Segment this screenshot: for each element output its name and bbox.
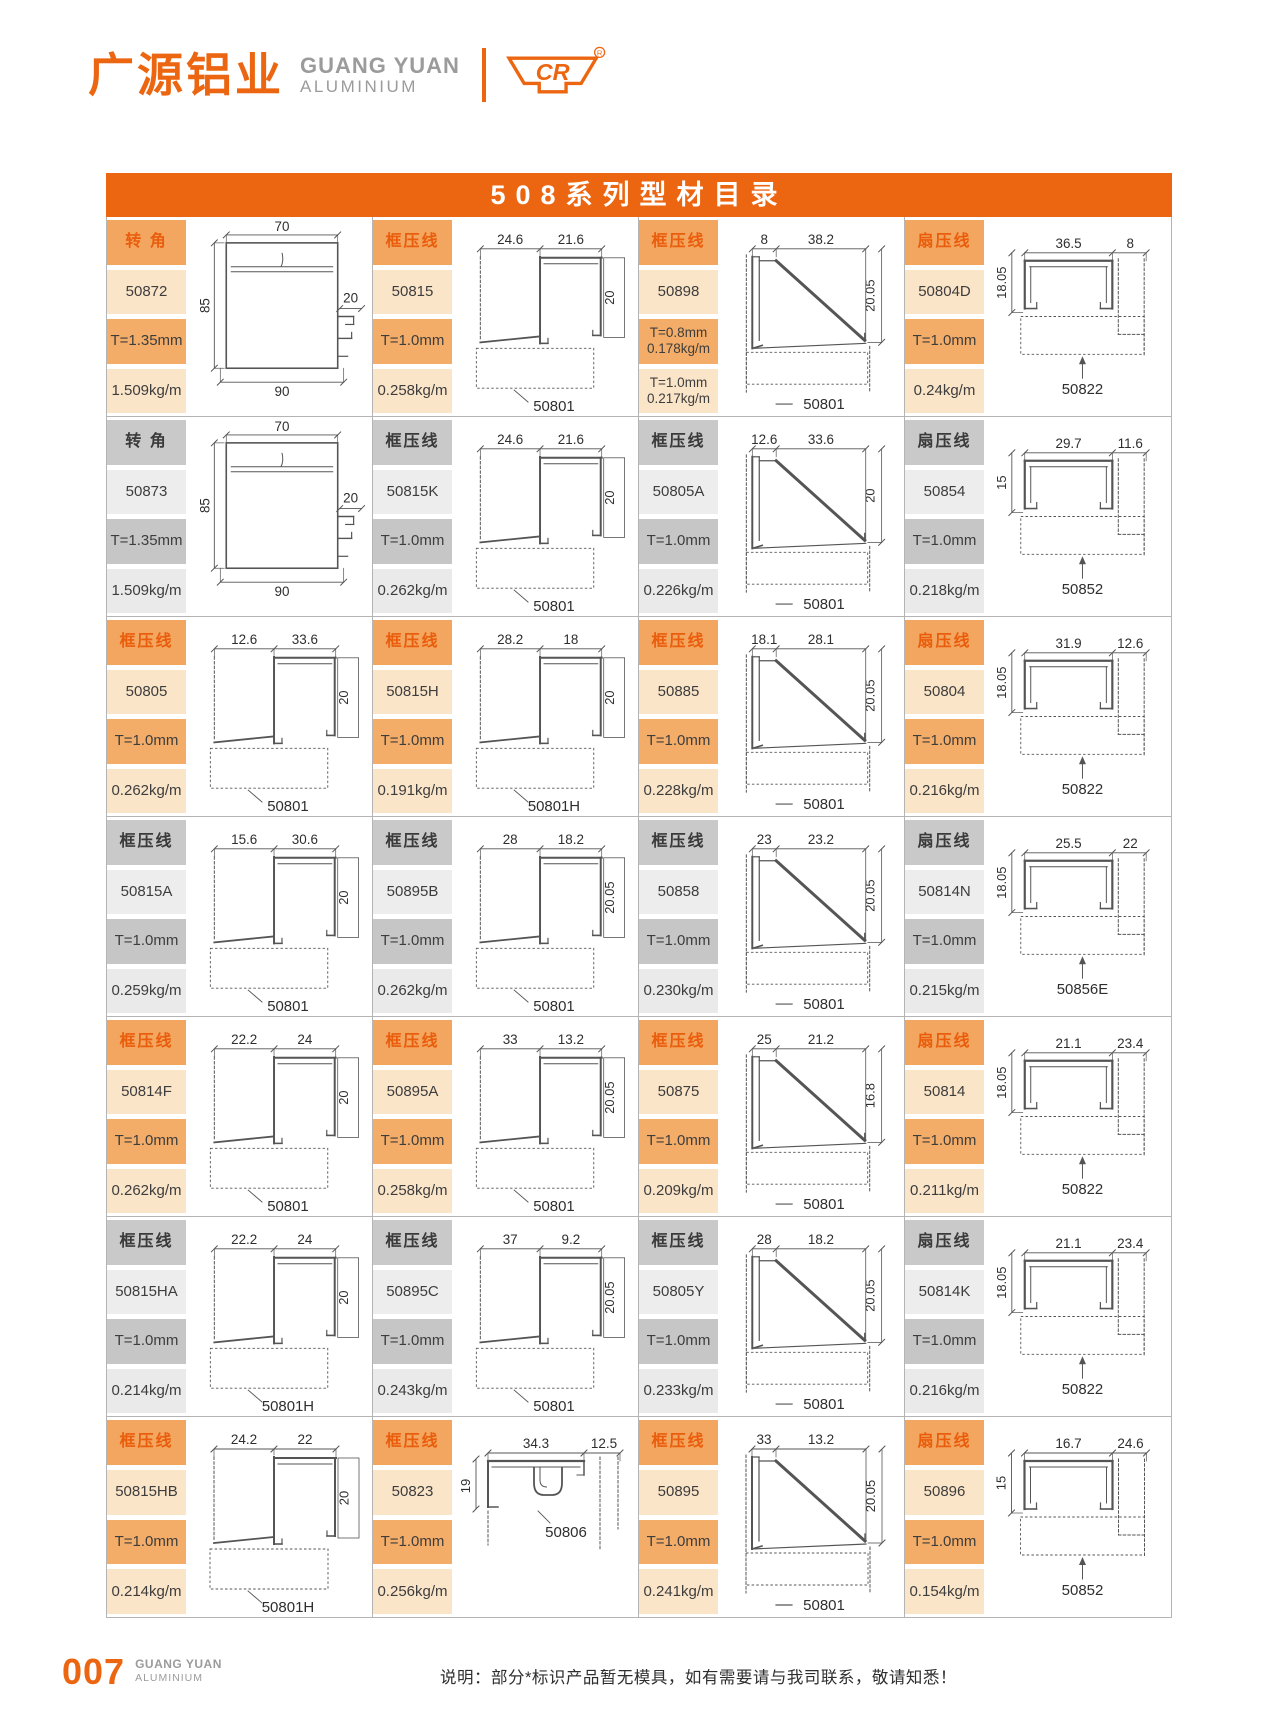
profile-weight: 0.154kg/m	[905, 1569, 984, 1614]
svg-text:50801: 50801	[803, 996, 844, 1013]
profile-drawing: 70852090	[186, 417, 372, 616]
profile-weight: 0.233kg/m	[639, 1369, 718, 1414]
profile-category: 扇压线	[905, 220, 984, 265]
profile-weight: 0.256kg/m	[373, 1569, 452, 1614]
profile-drawing: 28.2182050801H	[452, 617, 638, 816]
profile-thickness: T=1.0mm	[373, 1520, 452, 1565]
svg-text:18.05: 18.05	[994, 1266, 1009, 1298]
profile-category: 扇压线	[905, 820, 984, 865]
profile-code: 50805A	[639, 470, 718, 515]
profile-drawing: 16.724.61550852	[984, 1417, 1171, 1617]
svg-text:50801: 50801	[267, 798, 308, 815]
svg-text:50801H: 50801H	[262, 1398, 314, 1415]
profile-category: 扇压线	[905, 1220, 984, 1265]
svg-text:50856E: 50856E	[1057, 981, 1108, 998]
profile-info-column: 框压线50815AT=1.0mm0.259kg/m	[107, 817, 186, 1016]
profile-category: 框压线	[373, 1020, 452, 1065]
profile-thickness: T=1.35mm	[107, 319, 186, 364]
profile-drawing-svg: 70852090	[186, 217, 372, 416]
svg-text:19: 19	[458, 1479, 473, 1493]
profile-cell: 扇压线50854T=1.0mm0.218kg/m29.711.61550852	[905, 417, 1171, 617]
profile-info-column: 框压线50823T=1.0mm0.256kg/m	[373, 1417, 452, 1617]
profile-info-column: 框压线50895AT=1.0mm0.258kg/m	[373, 1017, 452, 1216]
svg-text:20: 20	[343, 291, 358, 306]
profile-cell: 框压线50805YT=1.0mm0.233kg/m2818.220.055080…	[639, 1217, 905, 1417]
profile-code: 50896	[905, 1470, 984, 1515]
profile-weight: 0.258kg/m	[373, 1169, 452, 1214]
profile-info-column: 框压线50815KT=1.0mm0.262kg/m	[373, 417, 452, 616]
profile-cell: 框压线50895CT=1.0mm0.243kg/m379.220.0550801	[373, 1217, 639, 1417]
profile-info-column: 转 角50873T=1.35mm1.509kg/m	[107, 417, 186, 616]
profile-info-column: 框压线50895CT=1.0mm0.243kg/m	[373, 1217, 452, 1416]
profile-cell: 扇压线50814T=1.0mm0.211kg/m21.123.418.05508…	[905, 1017, 1171, 1217]
profile-code: 50805Y	[639, 1270, 718, 1315]
profile-drawing-svg: 2818.220.0550801	[452, 817, 638, 1016]
profile-weight: 0.209kg/m	[639, 1169, 718, 1214]
svg-text:18: 18	[563, 632, 578, 647]
page-header: 广源铝业 GUANG YUAN ALUMINIUM CR R	[88, 44, 608, 106]
svg-text:33: 33	[503, 1032, 518, 1047]
profile-thickness: T=1.0mm	[373, 1319, 452, 1364]
catalog-table: 508系列型材目录 转 角50872T=1.35mm1.509kg/m70852…	[106, 173, 1172, 1618]
svg-text:16.8: 16.8	[863, 1083, 878, 1108]
profile-drawing: 3313.220.0550801	[718, 1417, 904, 1617]
profile-code: 50814N	[905, 870, 984, 915]
svg-text:85: 85	[197, 298, 212, 313]
svg-text:20.05: 20.05	[602, 881, 617, 913]
profile-weight: 0.262kg/m	[373, 569, 452, 614]
profile-code: 50815A	[107, 870, 186, 915]
svg-text:20.05: 20.05	[602, 1281, 617, 1313]
svg-text:18.1: 18.1	[751, 632, 777, 647]
profile-weight: 1.509kg/m	[107, 569, 186, 614]
svg-text:50822: 50822	[1062, 1381, 1103, 1398]
svg-text:15.6: 15.6	[231, 832, 257, 847]
svg-text:70: 70	[275, 219, 290, 234]
svg-text:23: 23	[757, 832, 772, 847]
brand-subtitle-en: ALUMINIUM	[300, 78, 460, 97]
profile-drawing-svg: 2818.220.0550801	[718, 1217, 904, 1416]
profile-cell: 框压线50895T=1.0mm0.241kg/m3313.220.0550801	[639, 1417, 905, 1617]
page-footer: 007 GUANG YUAN ALUMINIUM	[62, 1656, 222, 1688]
svg-text:21.1: 21.1	[1055, 1236, 1081, 1251]
profile-code: 50815	[373, 270, 452, 315]
profile-thickness: T=1.0mm	[373, 319, 452, 364]
profile-category: 框压线	[373, 820, 452, 865]
svg-text:36.5: 36.5	[1055, 236, 1081, 251]
profile-drawing-svg: 12.633.62050801	[718, 417, 904, 616]
profile-info-column: 框压线50895BT=1.0mm0.262kg/m	[373, 817, 452, 1016]
profile-drawing-svg: 16.724.61550852	[984, 1417, 1171, 1617]
profile-category: 框压线	[107, 1220, 186, 1265]
profile-info-column: 框压线50805T=1.0mm0.262kg/m	[107, 617, 186, 816]
profile-cell: 扇压线50896T=1.0mm0.154kg/m16.724.61550852	[905, 1417, 1171, 1617]
svg-text:R: R	[597, 48, 603, 57]
profile-cell: 框压线50815AT=1.0mm0.259kg/m15.630.62050801	[107, 817, 373, 1017]
profile-info-column: 扇压线50804T=1.0mm0.216kg/m	[905, 617, 984, 816]
svg-text:33: 33	[756, 1432, 771, 1447]
svg-text:50822: 50822	[1062, 381, 1103, 398]
profile-weight: 0.228kg/m	[639, 769, 718, 814]
brand-logo-chinese: 广源铝业	[88, 52, 284, 98]
svg-text:21.2: 21.2	[808, 1032, 834, 1047]
profile-category: 扇压线	[905, 620, 984, 665]
svg-text:18.05: 18.05	[994, 266, 1009, 298]
profile-info-column: 框压线50898T=0.8mm0.178kg/mT=1.0mm0.217kg/m	[639, 217, 718, 416]
svg-text:50801: 50801	[803, 596, 844, 613]
profile-code: 50895B	[373, 870, 452, 915]
profile-code: 50885	[639, 670, 718, 715]
profile-category: 框压线	[639, 420, 718, 465]
svg-text:20: 20	[336, 690, 351, 704]
footer-brand: GUANG YUAN ALUMINIUM	[135, 1658, 222, 1684]
profile-drawing-svg: 3313.220.0550801	[452, 1017, 638, 1216]
profile-drawing-svg: 36.5818.0550822	[984, 217, 1171, 416]
profile-drawing-svg: 12.633.62050801	[186, 617, 372, 816]
profile-weight: 0.262kg/m	[373, 969, 452, 1014]
profile-info-column: 框压线50815T=1.0mm0.258kg/m	[373, 217, 452, 416]
profile-drawing: 379.220.0550801	[452, 1217, 638, 1416]
profile-info-column: 扇压线50854T=1.0mm0.218kg/m	[905, 417, 984, 616]
profile-drawing: 838.220.0550801	[718, 217, 904, 416]
svg-text:8: 8	[761, 232, 768, 247]
profile-cell: 扇压线50814NT=1.0mm0.215kg/m25.52218.055085…	[905, 817, 1171, 1017]
svg-text:20.05: 20.05	[602, 1081, 617, 1113]
profile-drawing-svg: 31.912.618.0550822	[984, 617, 1171, 816]
svg-text:85: 85	[197, 498, 212, 513]
svg-text:24.6: 24.6	[497, 232, 523, 247]
profile-drawing: 34.312.51950806	[452, 1417, 638, 1617]
svg-text:20: 20	[602, 690, 617, 704]
profile-weight: 0.215kg/m	[905, 969, 984, 1014]
profile-weight: 0.214kg/m	[107, 1569, 186, 1614]
profile-thickness: T=1.0mm	[107, 719, 186, 764]
profile-drawing: 2818.220.0550801	[718, 1217, 904, 1416]
profile-cell: 框压线50875T=1.0mm0.209kg/m2521.216.850801	[639, 1017, 905, 1217]
profile-drawing: 12.633.62050801	[186, 617, 372, 816]
svg-text:20.05: 20.05	[863, 879, 878, 911]
profile-drawing: 12.633.62050801	[718, 417, 904, 616]
profile-cell: 转 角50873T=1.35mm1.509kg/m70852090	[107, 417, 373, 617]
profile-thickness: T=1.0mm	[905, 1520, 984, 1565]
svg-text:24.6: 24.6	[1117, 1436, 1143, 1451]
svg-text:22: 22	[297, 1432, 312, 1447]
profile-grid: 转 角50872T=1.35mm1.509kg/m70852090框压线5081…	[106, 217, 1172, 1618]
svg-text:33.6: 33.6	[292, 632, 318, 647]
catalog-title: 508系列型材目录	[106, 173, 1172, 217]
svg-text:9.2: 9.2	[562, 1232, 581, 1247]
profile-cell: 框压线50858T=1.0mm0.230kg/m2323.220.0550801	[639, 817, 905, 1017]
profile-drawing: 22.2242050801	[186, 1017, 372, 1216]
profile-drawing-svg: 29.711.61550852	[984, 417, 1171, 616]
svg-text:50801: 50801	[267, 1198, 308, 1215]
svg-text:21.6: 21.6	[558, 232, 584, 247]
profile-thickness: T=1.0mm	[905, 1319, 984, 1364]
svg-text:20: 20	[602, 490, 617, 504]
profile-drawing: 2818.220.0550801	[452, 817, 638, 1016]
profile-thickness: T=1.0mm	[373, 1119, 452, 1164]
svg-text:90: 90	[275, 384, 290, 399]
profile-cell: 扇压线50814KT=1.0mm0.216kg/m21.123.418.0550…	[905, 1217, 1171, 1417]
svg-text:12.6: 12.6	[1117, 636, 1143, 651]
profile-category: 框压线	[107, 620, 186, 665]
svg-text:50801: 50801	[533, 1198, 574, 1215]
svg-text:50801: 50801	[803, 1396, 844, 1413]
svg-text:22.2: 22.2	[231, 1232, 257, 1247]
profile-drawing: 22.2242050801H	[186, 1217, 372, 1416]
profile-info-column: 转 角50872T=1.35mm1.509kg/m	[107, 217, 186, 416]
svg-text:28: 28	[757, 1232, 772, 1247]
profile-cell: 框压线50805T=1.0mm0.262kg/m12.633.62050801	[107, 617, 373, 817]
profile-cell: 扇压线50804DT=1.0mm0.24kg/m36.5818.0550822	[905, 217, 1171, 417]
svg-text:20.05: 20.05	[863, 1480, 878, 1513]
profile-cell: 框压线50898T=0.8mm0.178kg/mT=1.0mm0.217kg/m…	[639, 217, 905, 417]
profile-drawing-svg: 24.621.62050801	[452, 417, 638, 616]
profile-weight: 0.241kg/m	[639, 1569, 718, 1614]
profile-thickness: T=1.0mm	[639, 919, 718, 964]
profile-category: 框压线	[373, 220, 452, 265]
svg-text:20: 20	[343, 491, 358, 506]
profile-cell: 框压线50815KT=1.0mm0.262kg/m24.621.62050801	[373, 417, 639, 617]
profile-weight: T=1.0mm0.217kg/m	[639, 369, 718, 414]
svg-text:28.2: 28.2	[497, 632, 523, 647]
profile-category: 框压线	[639, 220, 718, 265]
profile-info-column: 框压线50895T=1.0mm0.241kg/m	[639, 1417, 718, 1617]
profile-cell: 框压线50895BT=1.0mm0.262kg/m2818.220.055080…	[373, 817, 639, 1017]
svg-text:28: 28	[503, 832, 518, 847]
page-number: 007	[62, 1656, 125, 1688]
profile-drawing: 36.5818.0550822	[984, 217, 1171, 416]
profile-weight: 0.214kg/m	[107, 1369, 186, 1414]
profile-cell: 框压线50823T=1.0mm0.256kg/m34.312.51950806	[373, 1417, 639, 1617]
svg-text:50801: 50801	[533, 398, 574, 415]
profile-thickness: T=1.0mm	[373, 519, 452, 564]
profile-category: 框压线	[107, 1420, 186, 1465]
profile-cell: 框压线50815HAT=1.0mm0.214kg/m22.2242050801H	[107, 1217, 373, 1417]
profile-drawing-svg: 28.2182050801H	[452, 617, 638, 816]
svg-text:24.6: 24.6	[497, 432, 523, 447]
profile-weight: 0.259kg/m	[107, 969, 186, 1014]
svg-text:21.6: 21.6	[558, 432, 584, 447]
svg-text:20: 20	[336, 1290, 351, 1304]
profile-category: 框压线	[639, 620, 718, 665]
profile-drawing-svg: 21.123.418.0550822	[984, 1217, 1171, 1416]
profile-drawing-svg: 25.52218.0550856E	[984, 817, 1171, 1016]
svg-text:90: 90	[275, 584, 290, 599]
svg-text:31.9: 31.9	[1055, 636, 1081, 651]
profile-category: 框压线	[373, 1220, 452, 1265]
profile-category: 框压线	[107, 820, 186, 865]
svg-text:13.2: 13.2	[808, 1432, 834, 1447]
cr-logo-icon: CR R	[504, 44, 608, 106]
svg-text:50801: 50801	[533, 1398, 574, 1415]
profile-thickness: T=1.0mm	[107, 1319, 186, 1364]
profile-cell: 框压线50885T=1.0mm0.228kg/m18.128.120.05508…	[639, 617, 905, 817]
profile-drawing-svg: 15.630.62050801	[186, 817, 372, 1016]
svg-text:50806: 50806	[545, 1524, 587, 1541]
profile-cell: 框压线50805AT=1.0mm0.226kg/m12.633.62050801	[639, 417, 905, 617]
svg-text:15: 15	[994, 1476, 1009, 1490]
profile-thickness: T=1.0mm	[639, 1119, 718, 1164]
profile-info-column: 扇压线50804DT=1.0mm0.24kg/m	[905, 217, 984, 416]
profile-weight: 0.211kg/m	[905, 1169, 984, 1214]
profile-thickness: T=1.0mm	[905, 319, 984, 364]
profile-category: 框压线	[639, 1020, 718, 1065]
profile-cell: 转 角50872T=1.35mm1.509kg/m70852090	[107, 217, 373, 417]
svg-text:23.2: 23.2	[808, 832, 834, 847]
footer-note: 说明：部分*标识产品暂无模具，如有需要请与我司联系，敬请知悉！	[440, 1664, 957, 1688]
profile-weight: 0.216kg/m	[905, 769, 984, 814]
profile-drawing-svg: 24.2222050801H	[186, 1417, 372, 1617]
profile-info-column: 框压线50815HT=1.0mm0.191kg/m	[373, 617, 452, 816]
svg-text:18.05: 18.05	[994, 666, 1009, 698]
profile-code: 50875	[639, 1070, 718, 1115]
profile-code: 50895	[639, 1470, 718, 1515]
profile-drawing: 2323.220.0550801	[718, 817, 904, 1016]
svg-text:50801: 50801	[267, 998, 308, 1015]
profile-category: 扇压线	[905, 420, 984, 465]
profile-category: 框压线	[373, 620, 452, 665]
profile-drawing-svg: 18.128.120.0550801	[718, 617, 904, 816]
brand-logo-english: GUANG YUAN ALUMINIUM	[300, 54, 460, 97]
profile-thickness: T=1.0mm	[639, 1319, 718, 1364]
svg-text:50852: 50852	[1062, 581, 1103, 598]
profile-drawing: 15.630.62050801	[186, 817, 372, 1016]
svg-text:18.2: 18.2	[558, 832, 584, 847]
profile-info-column: 框压线50815HAT=1.0mm0.214kg/m	[107, 1217, 186, 1416]
profile-weight: 0.216kg/m	[905, 1369, 984, 1414]
profile-drawing: 24.2222050801H	[186, 1417, 372, 1617]
profile-category: 框压线	[373, 420, 452, 465]
svg-text:24: 24	[297, 1032, 312, 1047]
svg-text:25: 25	[757, 1032, 772, 1047]
profile-category: 转 角	[107, 220, 186, 265]
profile-code: 50898	[639, 270, 718, 315]
svg-text:25.5: 25.5	[1055, 836, 1081, 851]
svg-text:23.4: 23.4	[1117, 1236, 1144, 1251]
profile-cell: 框压线50815T=1.0mm0.258kg/m24.621.62050801	[373, 217, 639, 417]
profile-category: 框压线	[107, 1020, 186, 1065]
profile-code: 50814K	[905, 1270, 984, 1315]
svg-text:20: 20	[602, 290, 617, 304]
profile-code: 50895A	[373, 1070, 452, 1115]
profile-code: 50823	[373, 1470, 452, 1515]
profile-code: 50815K	[373, 470, 452, 515]
profile-weight: 0.243kg/m	[373, 1369, 452, 1414]
profile-category: 框压线	[639, 820, 718, 865]
profile-info-column: 扇压线50896T=1.0mm0.154kg/m	[905, 1417, 984, 1617]
svg-text:33.6: 33.6	[808, 432, 834, 447]
profile-code: 50873	[107, 470, 186, 515]
profile-drawing-svg: 21.123.418.0550822	[984, 1017, 1171, 1216]
profile-drawing: 3313.220.0550801	[452, 1017, 638, 1216]
profile-category: 扇压线	[905, 1420, 984, 1465]
profile-weight: 0.230kg/m	[639, 969, 718, 1014]
svg-text:11.6: 11.6	[1118, 436, 1143, 451]
profile-thickness: T=0.8mm0.178kg/m	[639, 319, 718, 364]
profile-category: 框压线	[639, 1220, 718, 1265]
cr-mark-text: CR	[536, 59, 570, 85]
svg-text:18.2: 18.2	[808, 1232, 834, 1247]
profile-category: 转 角	[107, 420, 186, 465]
svg-text:12.5: 12.5	[591, 1436, 617, 1451]
profile-info-column: 框压线50814FT=1.0mm0.262kg/m	[107, 1017, 186, 1216]
svg-text:18.05: 18.05	[994, 866, 1009, 898]
svg-text:20: 20	[336, 1090, 351, 1104]
profile-info-column: 框压线50885T=1.0mm0.228kg/m	[639, 617, 718, 816]
profile-drawing-svg: 2323.220.0550801	[718, 817, 904, 1016]
profile-drawing: 18.128.120.0550801	[718, 617, 904, 816]
svg-text:28.1: 28.1	[808, 632, 834, 647]
profile-info-column: 扇压线50814KT=1.0mm0.216kg/m	[905, 1217, 984, 1416]
svg-text:13.2: 13.2	[558, 1032, 584, 1047]
profile-drawing-svg: 838.220.0550801	[718, 217, 904, 416]
svg-text:50801: 50801	[803, 396, 844, 413]
profile-category: 框压线	[639, 1420, 718, 1465]
svg-text:50801: 50801	[803, 796, 844, 813]
profile-code: 50805	[107, 670, 186, 715]
profile-thickness: T=1.35mm	[107, 519, 186, 564]
profile-drawing: 21.123.418.0550822	[984, 1217, 1171, 1416]
profile-code: 50854	[905, 470, 984, 515]
profile-cell: 框压线50815HBT=1.0mm0.214kg/m24.2222050801H	[107, 1417, 373, 1617]
profile-thickness: T=1.0mm	[639, 719, 718, 764]
svg-text:20: 20	[336, 890, 351, 904]
svg-text:20.05: 20.05	[863, 679, 878, 711]
profile-code: 50858	[639, 870, 718, 915]
profile-drawing: 24.621.62050801	[452, 217, 638, 416]
profile-weight: 0.258kg/m	[373, 369, 452, 414]
profile-weight: 0.218kg/m	[905, 569, 984, 614]
svg-text:50801H: 50801H	[262, 1599, 315, 1616]
svg-text:20.05: 20.05	[863, 279, 878, 311]
profile-info-column: 框压线50805AT=1.0mm0.226kg/m	[639, 417, 718, 616]
profile-code: 50815H	[373, 670, 452, 715]
svg-text:16.7: 16.7	[1055, 1436, 1081, 1451]
profile-weight: 0.24kg/m	[905, 369, 984, 414]
profile-drawing: 25.52218.0550856E	[984, 817, 1171, 1016]
svg-text:20.05: 20.05	[863, 1279, 878, 1311]
svg-text:50852: 50852	[1062, 1582, 1104, 1599]
svg-text:70: 70	[275, 419, 290, 434]
profile-thickness: T=1.0mm	[107, 1520, 186, 1565]
profile-drawing-svg: 3313.220.0550801	[718, 1417, 904, 1617]
profile-weight: 0.191kg/m	[373, 769, 452, 814]
svg-text:12.6: 12.6	[751, 432, 777, 447]
profile-thickness: T=1.0mm	[107, 1119, 186, 1164]
profile-thickness: T=1.0mm	[639, 519, 718, 564]
brand-name-en: GUANG YUAN	[300, 54, 460, 78]
svg-text:50801H: 50801H	[528, 798, 580, 815]
svg-text:18.05: 18.05	[994, 1066, 1009, 1098]
profile-thickness: T=1.0mm	[373, 719, 452, 764]
profile-thickness: T=1.0mm	[107, 919, 186, 964]
profile-info-column: 框压线50875T=1.0mm0.209kg/m	[639, 1017, 718, 1216]
profile-thickness: T=1.0mm	[905, 719, 984, 764]
svg-text:8: 8	[1127, 236, 1134, 251]
svg-text:30.6: 30.6	[292, 832, 318, 847]
profile-drawing-svg: 34.312.51950806	[452, 1417, 638, 1617]
svg-text:50801: 50801	[533, 998, 574, 1015]
svg-text:24.2: 24.2	[231, 1432, 257, 1447]
profile-code: 50815HA	[107, 1270, 186, 1315]
profile-drawing: 70852090	[186, 217, 372, 416]
profile-drawing: 21.123.418.0550822	[984, 1017, 1171, 1216]
profile-drawing-svg: 22.2242050801H	[186, 1217, 372, 1416]
svg-text:22: 22	[1123, 836, 1138, 851]
logo-divider	[482, 48, 486, 102]
profile-code: 50814	[905, 1070, 984, 1115]
